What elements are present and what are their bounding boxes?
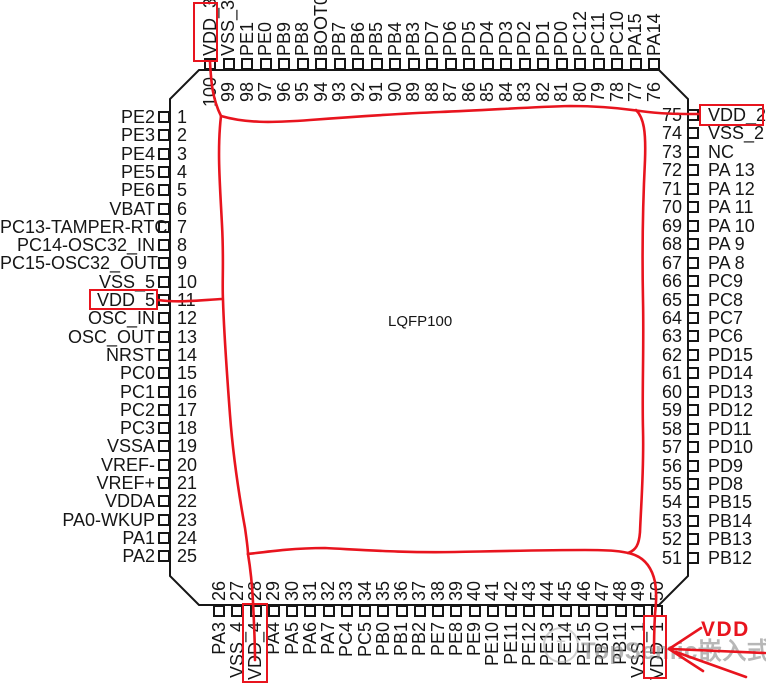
pin-square: [687, 127, 699, 139]
package-name: LQFP100: [388, 313, 452, 330]
pin-number-text: 44: [540, 581, 555, 601]
pin-square: [158, 312, 170, 324]
pin-square: [687, 552, 699, 564]
pin-label-text: VSS_3: [221, 0, 236, 56]
pin-number: 2: [177, 125, 187, 145]
vdd1-highlight-box: [643, 615, 667, 679]
pin-label: PE5: [0, 162, 155, 182]
pin-number-text: 94: [314, 82, 329, 102]
pin-number: 58: [630, 419, 682, 439]
pin-square: [359, 605, 371, 617]
pin-square: [687, 146, 699, 158]
pin-number: 13: [177, 327, 197, 347]
pin-label-text: PD3: [499, 21, 514, 56]
pin-number-text: 96: [277, 82, 292, 102]
pin-label: PA1: [0, 528, 155, 548]
pin-label: PC7: [708, 308, 743, 328]
pin-square: [426, 58, 438, 70]
pin-label: PA 8: [708, 253, 745, 273]
pin-number-text: 77: [628, 82, 643, 102]
pin-square: [371, 58, 383, 70]
pin-number-text: 87: [443, 82, 458, 102]
pin-number-text: 91: [369, 82, 384, 102]
pin-square: [463, 58, 475, 70]
pin-square: [500, 58, 512, 70]
pin-label: PB14: [708, 511, 752, 531]
pin-label-text: PD0: [554, 21, 569, 56]
pin-number-text: 35: [376, 581, 391, 601]
pin-label: PC15-OSC32_OUT: [0, 253, 155, 273]
pin-number: 62: [630, 345, 682, 365]
pin-square: [687, 496, 699, 508]
pin-square: [445, 58, 457, 70]
pin-square: [687, 386, 699, 398]
pin-square: [687, 201, 699, 213]
pin-number-text: 38: [431, 581, 446, 601]
pin-square: [396, 605, 408, 617]
pin-number: 71: [630, 179, 682, 199]
pin-number-text: 79: [591, 82, 606, 102]
pin-number-text: 89: [406, 82, 421, 102]
pin-label: PC8: [708, 290, 743, 310]
pin-square: [687, 109, 699, 121]
pin-square: [450, 605, 462, 617]
pin-label-text: PB9: [277, 22, 292, 56]
pin-square: [687, 275, 699, 287]
pin-label-text: PB3: [406, 22, 421, 56]
pin-label: OSC_IN: [0, 308, 155, 328]
pin-number: 70: [630, 197, 682, 217]
pin-number: 15: [177, 363, 197, 383]
pin-number-text: 26: [212, 581, 227, 601]
pin-label: PD9: [708, 456, 743, 476]
pin-square: [687, 367, 699, 379]
vdd-callout-label: VDD: [701, 618, 750, 642]
pin-square: [158, 276, 170, 288]
pin-square: [315, 58, 327, 70]
pin-number: 21: [177, 473, 197, 493]
pin-square: [158, 367, 170, 379]
pin-number-text: 86: [462, 82, 477, 102]
pin-label: PC14-OSC32_IN: [0, 235, 155, 255]
pin-label: PD14: [708, 363, 753, 383]
pin-number-text: 93: [332, 82, 347, 102]
pin-square: [487, 605, 499, 617]
pin-square: [158, 166, 170, 178]
pin-label-text: PC11: [591, 12, 606, 56]
pin-label-text: PA6: [303, 622, 318, 655]
pin-label-text: PE12: [522, 622, 537, 666]
pin-square: [687, 423, 699, 435]
pin-square: [687, 441, 699, 453]
pin-square: [158, 422, 170, 434]
pin-label-text: PB5: [369, 22, 384, 56]
pin-number-text: 45: [558, 581, 573, 601]
pin-square: [414, 605, 426, 617]
pin-label: PA2: [0, 546, 155, 566]
pin-label: VSS_2: [708, 123, 764, 143]
pin-label: PC13-TAMPER-RTC: [0, 217, 155, 237]
pin-number: 60: [630, 382, 682, 402]
pin-label-text: PD1: [536, 21, 551, 56]
pin-label-text: PA3: [212, 622, 227, 655]
pin-square: [352, 58, 364, 70]
pin-number-text: 97: [258, 82, 273, 102]
pin-label: PC1: [0, 382, 155, 402]
pin-square: [523, 605, 535, 617]
pin-square: [213, 605, 225, 617]
pin-number-text: 41: [485, 581, 500, 601]
pin-label-text: PE10: [485, 622, 500, 666]
pin-label: PA 13: [708, 160, 755, 180]
pin-number-text: 43: [522, 581, 537, 601]
pin-label-text: PE11: [504, 622, 519, 665]
pin-square: [260, 58, 272, 70]
pin-number: 73: [630, 142, 682, 162]
pin-label: VBAT: [0, 199, 155, 219]
pin-square: [687, 220, 699, 232]
pin-number: 10: [177, 272, 197, 292]
pin-number: 7: [177, 217, 187, 237]
pin-number-text: 88: [425, 82, 440, 102]
pin-label-text: BOOT0: [314, 0, 329, 56]
pin-number: 51: [630, 548, 682, 568]
pin-number: 67: [630, 253, 682, 273]
pin-square: [158, 550, 170, 562]
pin-number: 19: [177, 436, 197, 456]
pin-label: PD13: [708, 382, 753, 402]
pin-square: [687, 533, 699, 545]
pin-square: [648, 58, 660, 70]
pin-number: 3: [177, 144, 187, 164]
pin-label: OSC_OUT: [0, 327, 155, 347]
pin-number-text: 48: [613, 581, 628, 601]
pin-number-text: 39: [449, 581, 464, 601]
pin-number: 25: [177, 546, 197, 566]
pin-square: [158, 111, 170, 123]
vdd3-highlight-box: [193, 2, 218, 62]
pin-square: [687, 257, 699, 269]
pin-number-text: 47: [595, 581, 610, 601]
pin-square: [278, 58, 290, 70]
pin-number: 74: [630, 123, 682, 143]
pin-label-text: PB2: [412, 622, 427, 656]
pin-square: [687, 183, 699, 195]
pin-label: PD15: [708, 345, 753, 365]
pin-square: [158, 386, 170, 398]
pin-square: [556, 58, 568, 70]
pin-number-text: 42: [504, 581, 519, 601]
pin-number: 52: [630, 529, 682, 549]
pin-number-text: 81: [554, 82, 569, 102]
pin-square: [482, 58, 494, 70]
pin-number: 68: [630, 234, 682, 254]
pin-label: VDDA: [0, 491, 155, 511]
pin-number-text: 76: [647, 82, 662, 102]
pin-number: 22: [177, 491, 197, 511]
pin-number: 65: [630, 290, 682, 310]
pin-number-text: 90: [388, 82, 403, 102]
pin-label-text: PE7: [431, 622, 446, 656]
pin-number-text: 31: [303, 581, 318, 601]
pin-number: 24: [177, 528, 197, 548]
pin-square: [630, 58, 642, 70]
pin-label: PB15: [708, 492, 752, 512]
vdd2-highlight-box: [699, 104, 764, 126]
pin-label-text: PC4: [339, 622, 354, 657]
pin-square: [158, 440, 170, 452]
pin-square: [408, 58, 420, 70]
pin-label-text: PA15: [628, 13, 643, 56]
pin-square: [615, 605, 627, 617]
pin-square: [158, 129, 170, 141]
pin-square: [537, 58, 549, 70]
pin-number: 56: [630, 456, 682, 476]
pin-square: [389, 58, 401, 70]
pin-number: 54: [630, 492, 682, 512]
pin-square: [574, 58, 586, 70]
pin-square: [578, 605, 590, 617]
pin-number: 23: [177, 510, 197, 530]
pin-number: 66: [630, 271, 682, 291]
pin-number: 69: [630, 216, 682, 236]
pin-number: 1: [177, 107, 187, 127]
pin-number-text: 32: [321, 581, 336, 601]
pin-number: 59: [630, 400, 682, 420]
pin-square: [519, 58, 531, 70]
pin-square: [158, 257, 170, 269]
pin-number: 18: [177, 418, 197, 438]
pin-label: PB12: [708, 548, 752, 568]
pin-label: PE3: [0, 125, 155, 145]
pin-square: [158, 148, 170, 160]
pin-label-text: PC12: [573, 11, 588, 56]
pin-square: [241, 58, 253, 70]
pin-square: [158, 349, 170, 361]
pin-number-text: 85: [480, 82, 495, 102]
pin-square: [596, 605, 608, 617]
pin-label: PC0: [0, 363, 155, 383]
pin-label-text: PE1: [240, 22, 255, 56]
pin-number-text: 50: [650, 581, 665, 601]
pin-square: [341, 605, 353, 617]
pin-square: [687, 164, 699, 176]
pin-square: [158, 477, 170, 489]
pin-number-text: 40: [467, 581, 482, 601]
pin-label-text: PB8: [295, 22, 310, 56]
pin-label-text: PB0: [376, 622, 391, 656]
pin-square: [223, 58, 235, 70]
pin-label: PC6: [708, 326, 743, 346]
pin-number: 9: [177, 253, 187, 273]
pin-number: 20: [177, 455, 197, 475]
pin-label: PD10: [708, 437, 753, 457]
pin-label: PB13: [708, 529, 752, 549]
pin-square: [158, 404, 170, 416]
vdd4-highlight-box: [242, 603, 268, 683]
pin-label-text: PB4: [388, 22, 403, 56]
pin-number: 55: [630, 474, 682, 494]
pin-square: [593, 58, 605, 70]
pin-number-text: 99: [221, 82, 236, 102]
pin-label-text: PC5: [358, 622, 373, 657]
pin-number: 57: [630, 437, 682, 457]
pin-square: [687, 404, 699, 416]
pin-label-text: PA7: [321, 622, 336, 655]
pin-square: [268, 605, 280, 617]
pin-number-text: 95: [295, 82, 310, 102]
pin-square: [158, 459, 170, 471]
pin-square: [158, 294, 170, 306]
pin-square: [687, 330, 699, 342]
pin-number: 16: [177, 382, 197, 402]
pin-label-text: PB1: [394, 622, 409, 656]
pin-square: [158, 184, 170, 196]
pin-square: [286, 605, 298, 617]
pin-label-text: PE8: [449, 622, 464, 656]
pin-square: [687, 238, 699, 250]
pin-number: 8: [177, 235, 187, 255]
pin-number-text: 98: [240, 82, 255, 102]
pin-square: [158, 239, 170, 251]
pin-number: 75: [630, 105, 682, 125]
pin-number-text: 33: [339, 581, 354, 601]
pin-number-text: 30: [285, 581, 300, 601]
pin-number-text: 34: [358, 581, 373, 601]
vdd5-highlight-box: [89, 289, 158, 310]
pin-square: [560, 605, 572, 617]
pin-label: PC3: [0, 418, 155, 438]
pin-number-text: 37: [412, 581, 427, 601]
pin-label: PE4: [0, 144, 155, 164]
pin-label-text: PA5: [285, 622, 300, 655]
pin-label: PD12: [708, 400, 753, 420]
pin-label-text: PB7: [332, 22, 347, 56]
pin-square: [687, 312, 699, 324]
pin-number-text: 78: [610, 82, 625, 102]
pin-number-text: 28: [248, 581, 263, 601]
pin-number: 11: [177, 290, 196, 310]
pin-label-text: PC10: [610, 11, 625, 56]
pin-square: [377, 605, 389, 617]
pinout-diagram: LQFP100 T TopSemic嵌入式 VDD 100VDD_326PA31…: [0, 0, 766, 684]
pin-label-text: PA14: [647, 13, 662, 56]
pin-number: 72: [630, 160, 682, 180]
pin-number: 14: [177, 345, 197, 365]
pin-square: [158, 495, 170, 507]
pin-label-text: PE0: [258, 22, 273, 56]
pin-label: PC9: [708, 271, 743, 291]
pin-square: [687, 294, 699, 306]
pin-label: PE2: [0, 107, 155, 127]
pin-square: [297, 58, 309, 70]
pin-label: PA 11: [708, 197, 753, 217]
pin-number: 12: [177, 308, 197, 328]
pin-square: [158, 532, 170, 544]
pin-label: PD8: [708, 474, 743, 494]
pin-label-text: PA4: [266, 622, 281, 655]
pin-square: [687, 515, 699, 527]
pin-square: [158, 203, 170, 215]
pin-square: [687, 478, 699, 490]
pin-number: 5: [177, 180, 187, 200]
pin-label: PD11: [708, 419, 752, 439]
pin-label-text: PD6: [443, 21, 458, 56]
pin-square: [687, 349, 699, 361]
pin-square: [611, 58, 623, 70]
pin-label: VREF+: [0, 473, 155, 493]
pin-number: 6: [177, 199, 187, 219]
pin-number-text: 83: [517, 82, 532, 102]
pin-label: PE6: [0, 180, 155, 200]
pin-number-text: 29: [266, 581, 281, 601]
pin-label-text: PD7: [425, 21, 440, 56]
pin-number-text: 92: [351, 82, 366, 102]
pin-label-text: PD2: [517, 21, 532, 56]
pin-number-text: 46: [577, 581, 592, 601]
pin-label: VREF-: [0, 455, 155, 475]
pin-number-text: 82: [536, 82, 551, 102]
pin-label: PA 9: [708, 234, 745, 254]
pin-square: [323, 605, 335, 617]
watermark-logo-icon: T: [543, 627, 579, 663]
pin-label: PA0-WKUP: [0, 510, 155, 530]
pin-square: [505, 605, 517, 617]
pin-number-text: 27: [230, 581, 245, 601]
pin-square: [432, 605, 444, 617]
pin-number: 63: [630, 326, 682, 346]
pin-label-text: PD5: [462, 21, 477, 56]
pin-label-text: PB6: [351, 22, 366, 56]
pin-square: [687, 460, 699, 472]
pin-label-text: PE9: [467, 622, 482, 656]
pin-square: [158, 514, 170, 526]
pin-number: 53: [630, 511, 682, 531]
pin-label: NC: [708, 142, 734, 162]
pin-label: PC2: [0, 400, 155, 420]
pin-number: 61: [630, 363, 682, 383]
pin-number-text: 84: [499, 82, 514, 102]
pin-square: [304, 605, 316, 617]
pin-label-text: PD4: [480, 21, 495, 56]
pin-number-text: 100: [203, 77, 218, 107]
pin-number: 4: [177, 162, 187, 182]
pin-square: [334, 58, 346, 70]
pin-label: VSSA: [0, 436, 155, 456]
pin-number-text: 80: [573, 82, 588, 102]
pin-square: [158, 331, 170, 343]
pin-number-text: 36: [394, 581, 409, 601]
pin-number-text: 49: [631, 581, 646, 601]
pin-label: PA 10: [708, 216, 755, 236]
pin-number: 17: [177, 400, 197, 420]
pin-label: PA 12: [708, 179, 755, 199]
pin-square: [469, 605, 481, 617]
pin-square: [542, 605, 554, 617]
pin-label: NRST: [0, 345, 155, 365]
pin-number: 64: [630, 308, 682, 328]
